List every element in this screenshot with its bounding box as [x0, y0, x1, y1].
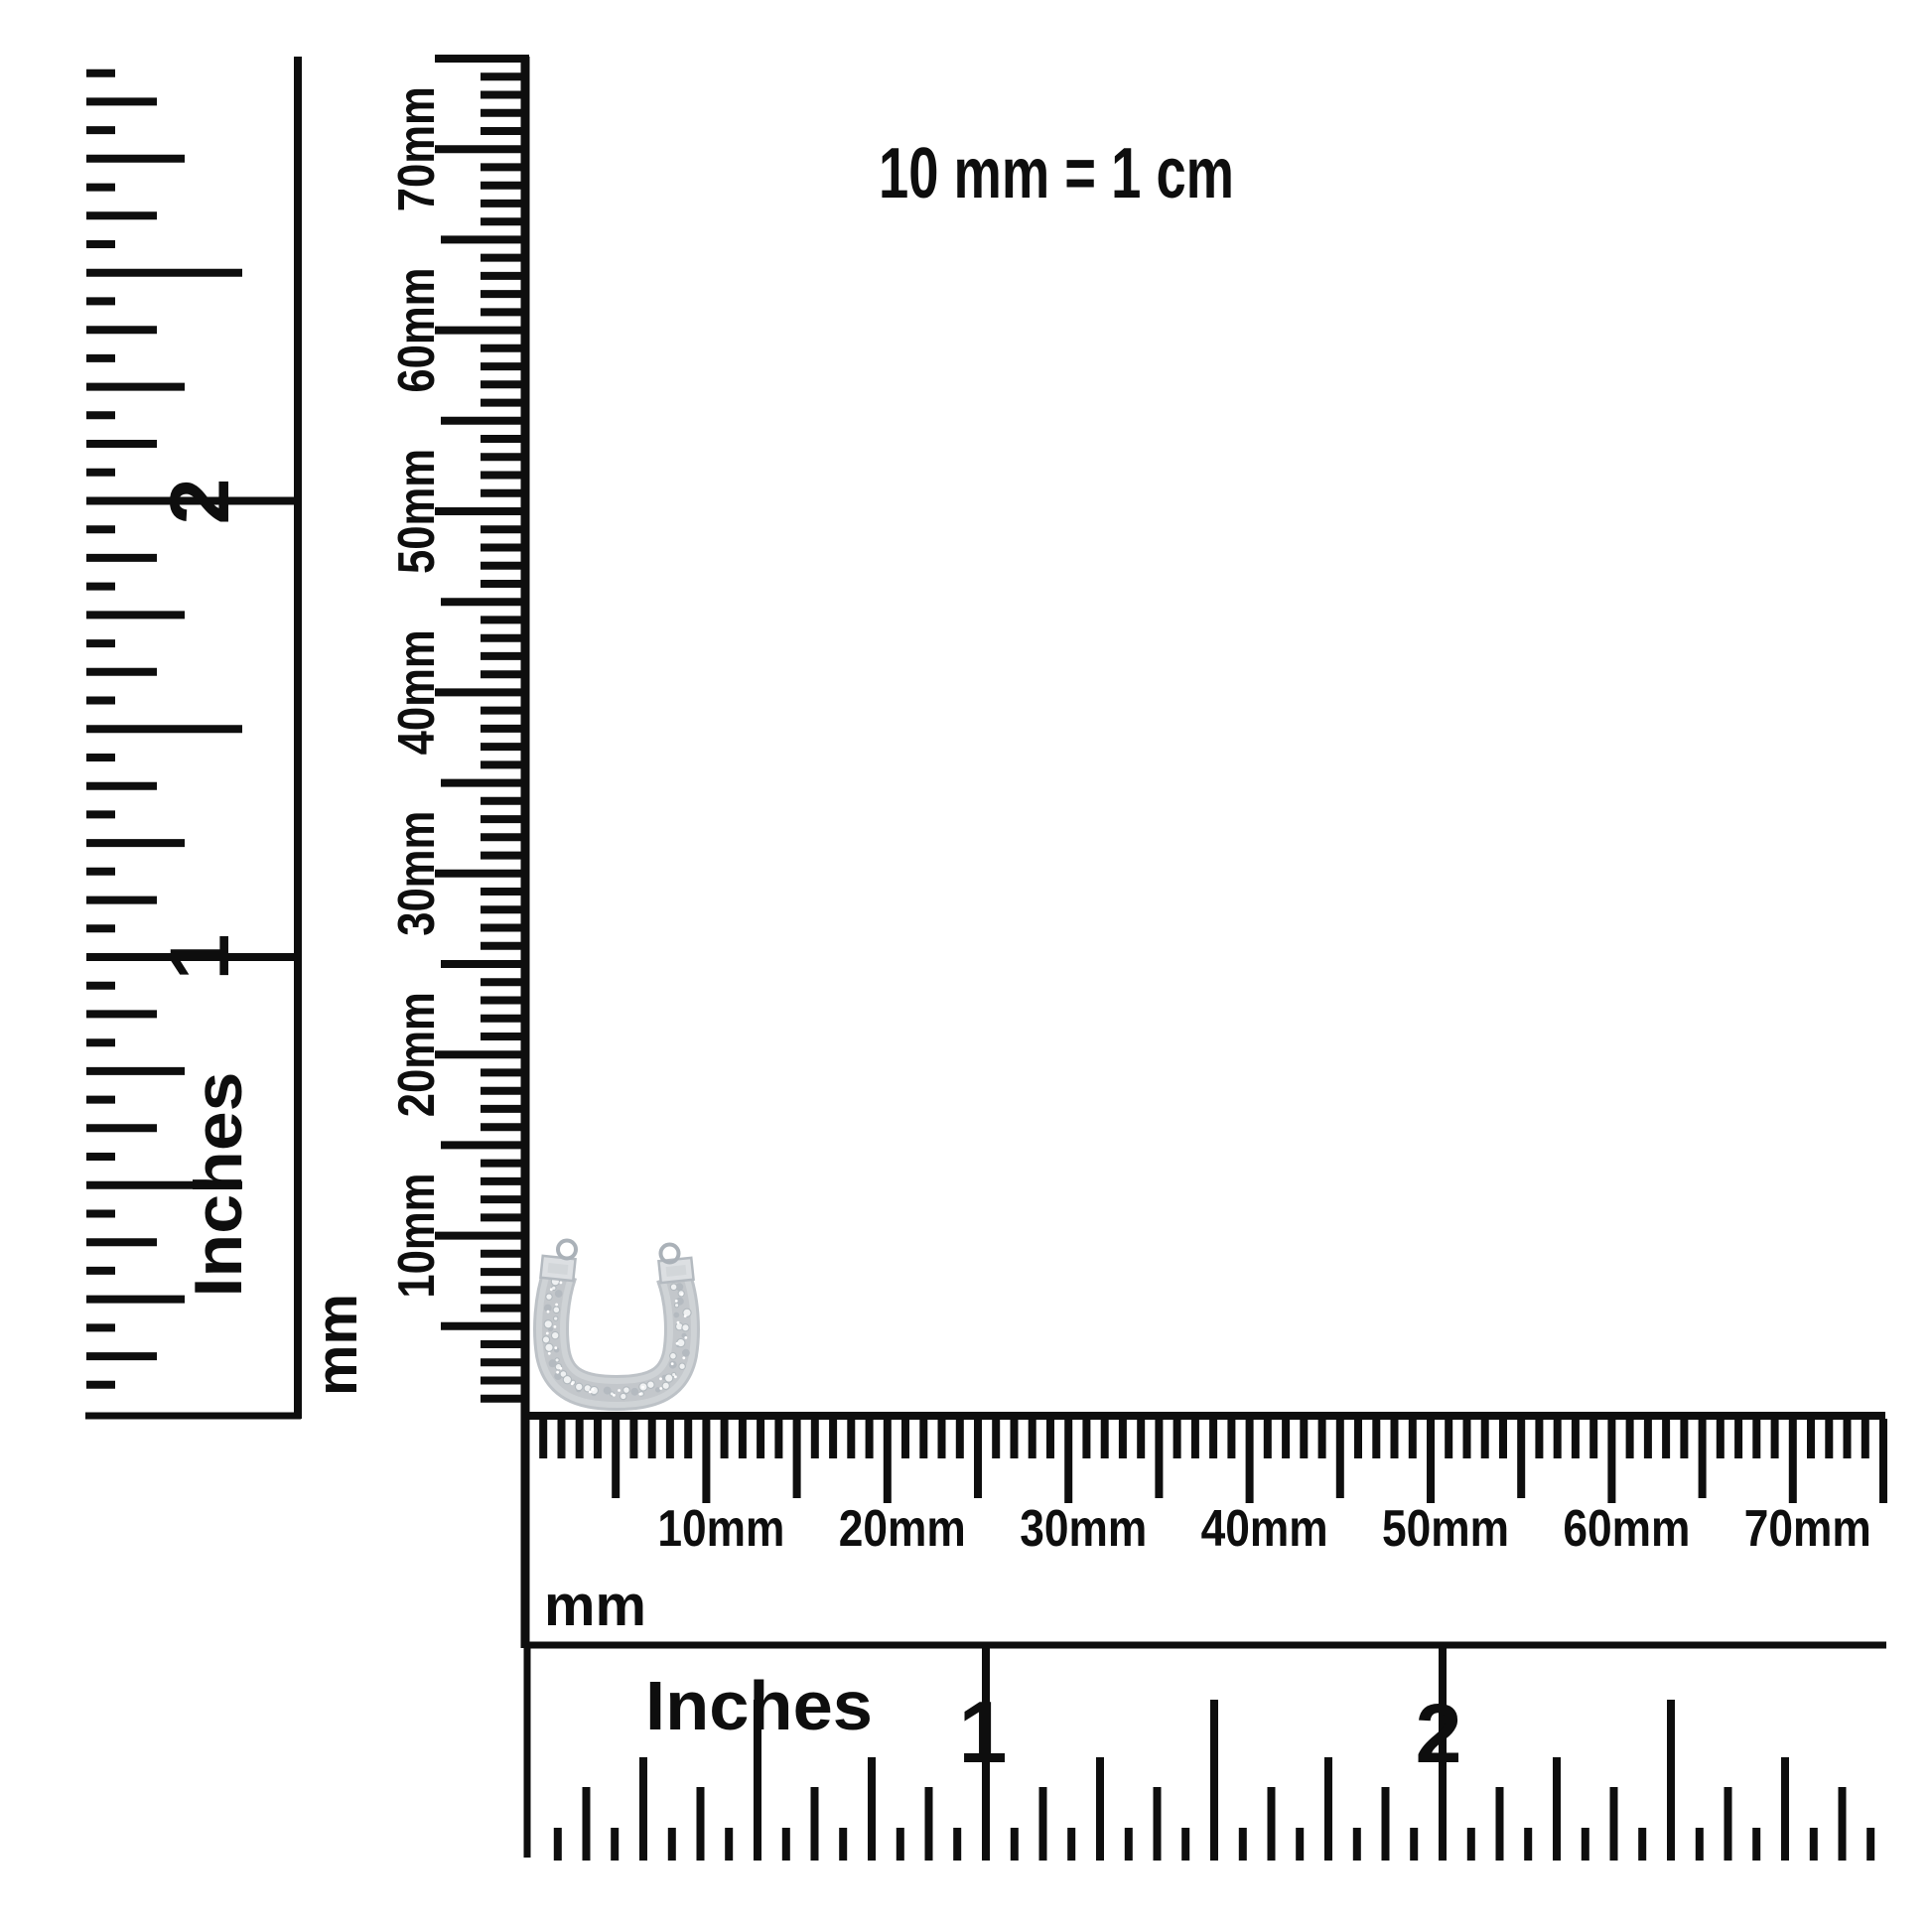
svg-text:mm: mm: [305, 1294, 369, 1396]
svg-text:2: 2: [1416, 1687, 1462, 1780]
svg-text:60mm: 60mm: [1563, 1500, 1690, 1558]
svg-text:70mm: 70mm: [1744, 1500, 1871, 1558]
svg-text:70mm: 70mm: [388, 86, 446, 211]
svg-text:2: 2: [153, 479, 246, 525]
svg-text:10 mm = 1 cm: 10 mm = 1 cm: [879, 134, 1234, 213]
svg-text:Inches: Inches: [645, 1667, 873, 1744]
svg-text:30mm: 30mm: [388, 811, 446, 936]
svg-text:20mm: 20mm: [388, 992, 446, 1117]
svg-text:1: 1: [959, 1683, 1008, 1781]
svg-text:10mm: 10mm: [388, 1173, 446, 1299]
svg-text:1: 1: [153, 934, 246, 981]
svg-text:mm: mm: [544, 1574, 646, 1638]
svg-text:10mm: 10mm: [657, 1500, 784, 1558]
svg-text:30mm: 30mm: [1020, 1500, 1147, 1558]
svg-text:50mm: 50mm: [1382, 1500, 1509, 1558]
svg-text:20mm: 20mm: [839, 1500, 966, 1558]
svg-text:60mm: 60mm: [388, 268, 446, 393]
svg-text:40mm: 40mm: [388, 629, 446, 755]
svg-text:40mm: 40mm: [1201, 1500, 1328, 1558]
svg-text:Inches: Inches: [181, 1072, 256, 1298]
svg-text:50mm: 50mm: [388, 449, 446, 574]
